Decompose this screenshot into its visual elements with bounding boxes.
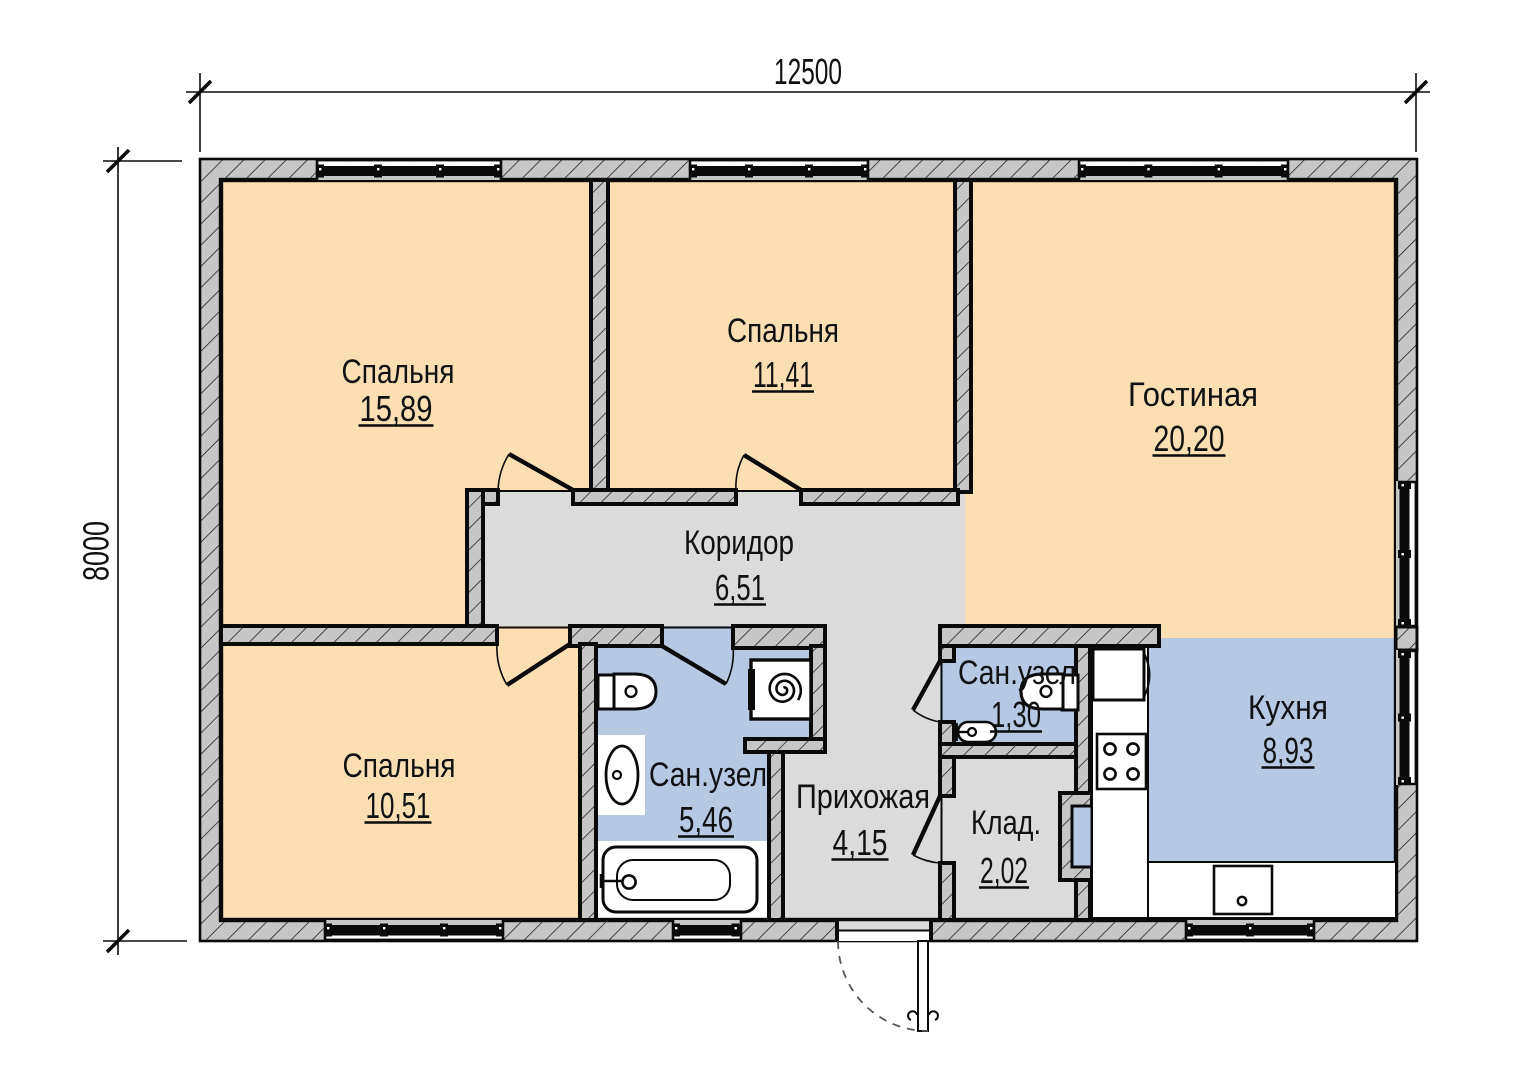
svg-text:Гостиная: Гостиная [1128, 376, 1258, 414]
svg-text:20,20: 20,20 [1154, 418, 1225, 459]
svg-text:Сан.узел: Сан.узел [958, 654, 1076, 692]
svg-text:Кухня: Кухня [1248, 689, 1328, 727]
svg-text:Спальня: Спальня [342, 353, 455, 391]
svg-text:Сан.узел: Сан.узел [649, 756, 767, 794]
svg-text:11,41: 11,41 [753, 354, 813, 395]
svg-text:Клад.: Клад. [971, 804, 1041, 842]
svg-text:Спальня: Спальня [727, 312, 839, 350]
svg-text:2,02: 2,02 [980, 850, 1028, 891]
svg-text:15,89: 15,89 [360, 388, 433, 429]
svg-text:8,93: 8,93 [1263, 730, 1314, 771]
svg-text:4,15: 4,15 [833, 822, 888, 863]
svg-text:10,51: 10,51 [366, 785, 431, 826]
svg-text:Коридор: Коридор [684, 524, 794, 562]
svg-text:Прихожая: Прихожая [796, 778, 930, 816]
svg-text:8000: 8000 [76, 521, 117, 581]
svg-text:6,51: 6,51 [715, 567, 765, 608]
svg-text:1,30: 1,30 [991, 694, 1041, 735]
svg-text:5,46: 5,46 [679, 799, 733, 840]
svg-text:12500: 12500 [774, 51, 842, 92]
svg-text:Спальня: Спальня [343, 747, 456, 785]
